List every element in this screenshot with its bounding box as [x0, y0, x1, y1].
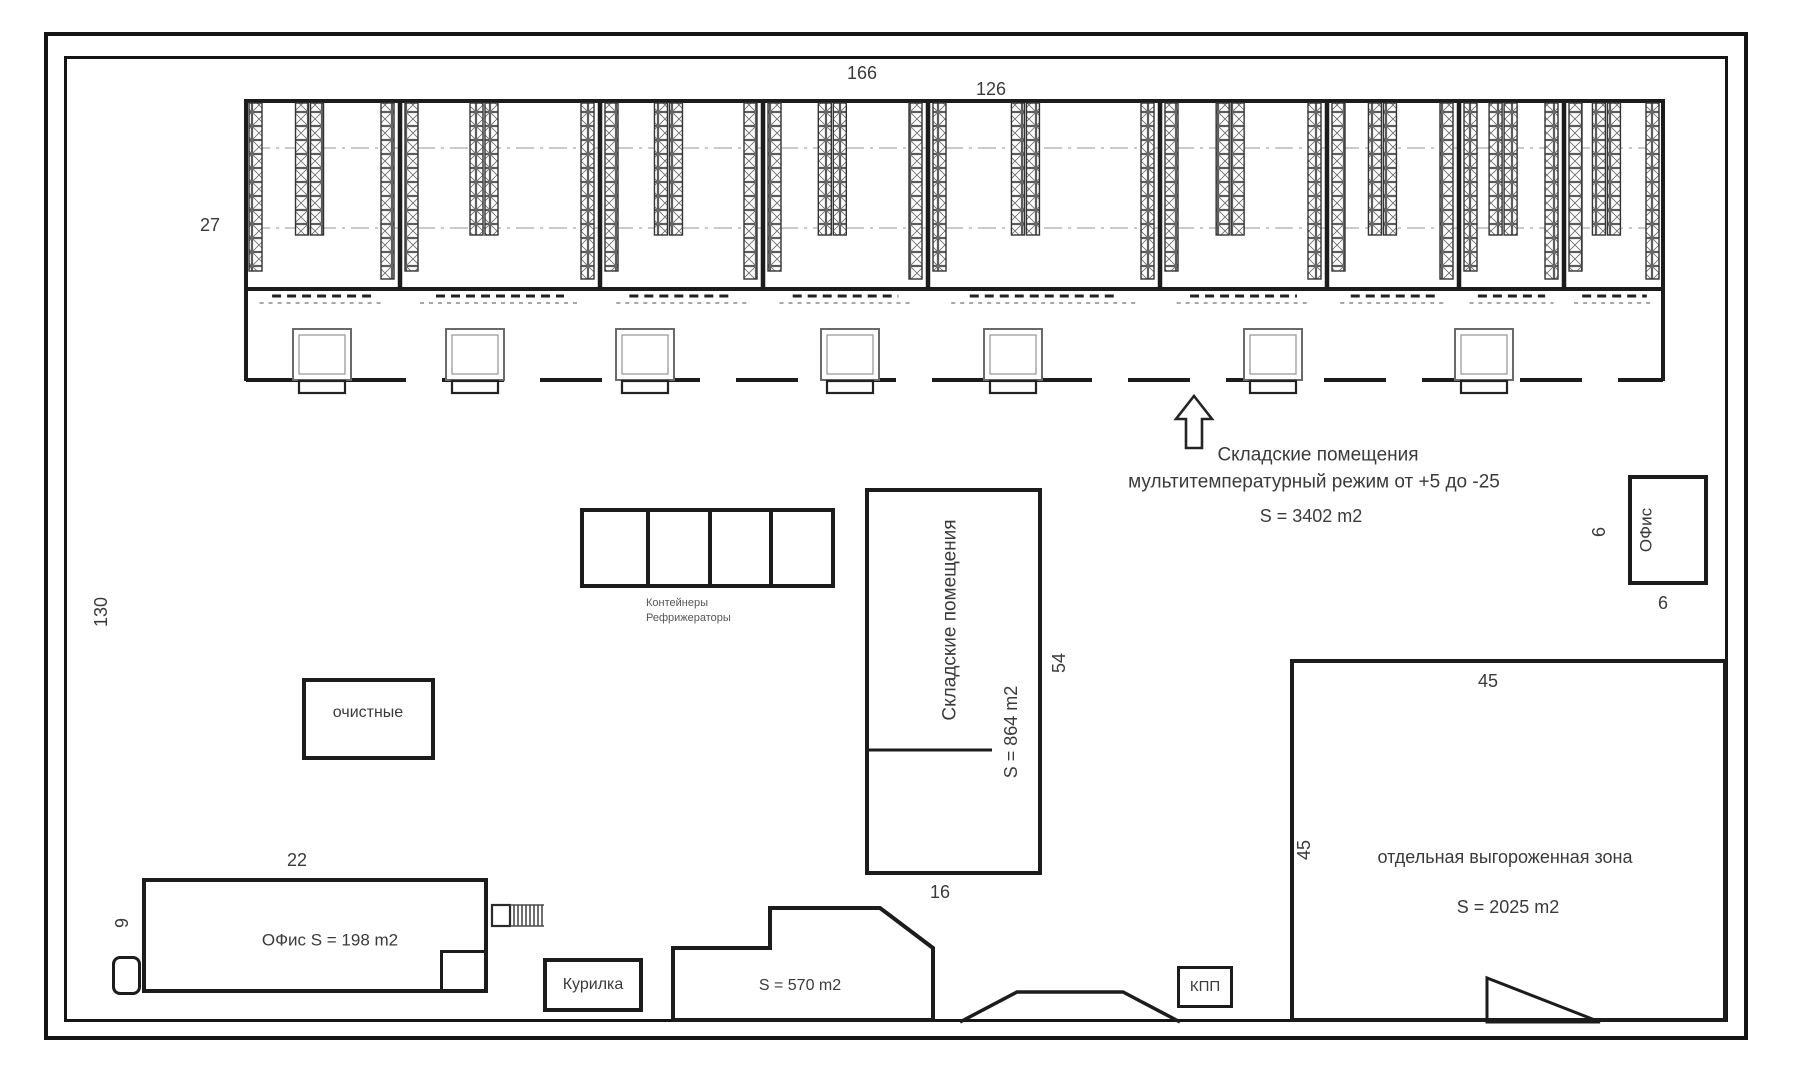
dim-warehouse-depth: 27	[200, 216, 220, 236]
office-left-label: ОФис S = 198 m2	[262, 932, 398, 951]
dock-door	[293, 329, 351, 393]
warehouse-note-area: S = 3402 m2	[1260, 507, 1363, 527]
treatment-label: очистные	[333, 704, 403, 722]
site-plan: 166 126 27 130 22 9 54 16 45 45 6 6 Скла…	[0, 0, 1793, 1085]
dim-mid-storage-width: 16	[930, 883, 950, 903]
containers-label-line1: Контейнеры	[646, 597, 708, 609]
container-cell	[584, 512, 646, 584]
stairs	[492, 905, 544, 926]
dock-doors	[293, 329, 1513, 393]
dock-door	[1455, 329, 1513, 393]
dock-door	[446, 329, 504, 393]
dim-office-left-depth: 9	[113, 918, 133, 928]
dock-door	[984, 329, 1042, 393]
mid-storage-name: Складские помещения	[941, 519, 962, 720]
dim-office-right-side: 6	[1590, 527, 1610, 537]
dim-warehouse-width: 166	[847, 64, 877, 84]
warehouse-note-line1: Складские помещения	[1217, 446, 1418, 467]
dim-site-height: 130	[92, 597, 112, 627]
dim-zone-side: 45	[1295, 840, 1315, 860]
zone-area-label: S = 2025 m2	[1457, 898, 1560, 918]
gate-ramp	[960, 992, 1180, 1022]
office-left-entry	[112, 956, 141, 995]
containers-label-line2: Рефрижераторы	[646, 612, 731, 624]
container-cell	[708, 512, 770, 584]
smoking-room-label: Курилка	[563, 976, 624, 994]
dock-wall-openings	[260, 296, 1655, 303]
dim-office-left-width: 22	[287, 851, 307, 871]
dim-office-right-bottom: 6	[1658, 594, 1668, 614]
refrigerated-containers-block	[580, 508, 835, 588]
zone-name-label: отдельная выгороженная зона	[1378, 848, 1633, 868]
dock-door	[821, 329, 879, 393]
arrow-up-icon	[1176, 396, 1212, 448]
dock-door	[1244, 329, 1302, 393]
mid-storage-area: S = 864 m2	[1002, 686, 1022, 779]
checkpoint-label: КПП	[1190, 979, 1220, 996]
dock-door	[616, 329, 674, 393]
container-cell	[646, 512, 708, 584]
warehouse-note-line2: мультитемпературный режим от +5 до -25	[1128, 473, 1500, 494]
office-right-label: ОФис	[1638, 508, 1657, 552]
dim-zone-top: 45	[1478, 672, 1498, 692]
yard-area-outline	[673, 908, 933, 1020]
dim-mid-storage-height: 54	[1050, 653, 1070, 673]
container-cell	[769, 512, 831, 584]
yard-area-label: S = 570 m2	[759, 977, 841, 995]
dim-warehouse-width-2: 126	[976, 80, 1006, 100]
office-left-annex	[440, 950, 488, 993]
fenced-zone	[1290, 659, 1727, 1022]
warehouse-rack-rows	[249, 103, 1659, 279]
